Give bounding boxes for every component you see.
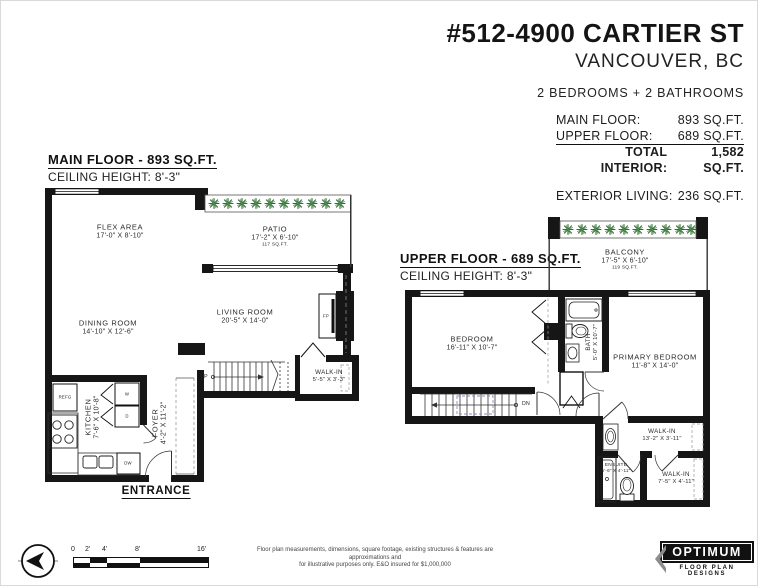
bifold-door-icon bbox=[101, 384, 113, 426]
compass-icon bbox=[18, 541, 58, 581]
listing-header: #512-4900 CARTIER ST VANCOUVER, BC 2 BED… bbox=[446, 18, 744, 205]
vanity-sink-icon bbox=[603, 424, 618, 450]
scale-bar: 0 2' 4' 8' 16' bbox=[73, 546, 215, 570]
stove-icon bbox=[49, 415, 77, 448]
scale-tick: 2' bbox=[85, 546, 90, 553]
stairs-up-icon bbox=[208, 360, 288, 392]
scale-bar-graphic bbox=[73, 557, 209, 568]
disclaimer-line-2: for illustrative purposes only. E&O insu… bbox=[240, 562, 510, 570]
toilet-icon bbox=[620, 478, 634, 502]
room-label-dining: DINING ROOM 14'-10" X 12'-6" bbox=[79, 319, 137, 336]
floor-plan-page: #512-4900 CARTIER ST VANCOUVER, BC 2 BED… bbox=[0, 0, 758, 586]
washer-label: W bbox=[125, 392, 129, 397]
area-value: 893 SQ.FT. bbox=[678, 113, 744, 129]
main-floor-plan: FLEX AREA 17'-0" X 8'-10" PATIO 17'-2" X… bbox=[45, 185, 365, 500]
area-row-main: MAIN FLOOR: 893 SQ.FT. bbox=[556, 113, 744, 129]
room-label-walkin-2: WALK-IN 7'-5" X 4'-11" bbox=[658, 471, 694, 485]
main-floor-ceiling: CEILING HEIGHT: 8'-3" bbox=[48, 170, 180, 184]
logo-box: OPTIMUM bbox=[660, 541, 754, 563]
area-label: MAIN FLOOR: bbox=[556, 113, 641, 129]
dryer-label: D bbox=[125, 414, 128, 419]
sliding-door-icon bbox=[213, 266, 338, 272]
main-floor-drawing bbox=[45, 185, 365, 500]
sliding-door-icon bbox=[628, 291, 696, 296]
dishwasher-label: DW bbox=[124, 461, 132, 466]
scale-tick: 0 bbox=[71, 546, 75, 553]
logo-arrow-icon bbox=[655, 545, 667, 573]
landing-closet bbox=[560, 372, 583, 408]
stairs-down-label: DN bbox=[522, 401, 530, 407]
area-value: 689 SQ.FT. bbox=[678, 129, 744, 145]
disclaimer: Floor plan measurements, dimensions, squ… bbox=[240, 547, 510, 570]
stairs-up-label: UP bbox=[200, 374, 208, 380]
bathtub-icon bbox=[566, 299, 602, 321]
area-row-upper: UPPER FLOOR: 689 SQ.FT. bbox=[556, 129, 744, 145]
area-value: 1,582 SQ.FT. bbox=[667, 145, 744, 176]
room-label-patio: PATIO 17'-2" X 6'-10" 117 SQ.FT. bbox=[251, 225, 298, 248]
washer-dryer-icon bbox=[115, 383, 139, 427]
room-label-bath: BATH 5'-0" X 10'-7" bbox=[585, 324, 599, 360]
listing-address: #512-4900 CARTIER ST bbox=[446, 18, 744, 49]
bifold-door-icon bbox=[532, 300, 546, 354]
room-label-bedroom: BEDROOM 16'-11" X 10'-7" bbox=[447, 335, 498, 352]
room-label-ensuite: ENSUITE 5'-6" X 4'-11" bbox=[602, 463, 631, 473]
area-row-exterior: EXTERIOR LIVING: 236 SQ.FT. bbox=[556, 189, 744, 205]
fireplace-label: FP bbox=[323, 314, 329, 319]
main-floor-title: MAIN FLOOR - 893 SQ.FT. bbox=[48, 152, 217, 169]
balcony-planter bbox=[560, 221, 696, 238]
room-label-kitchen: KITCHEN 7'-6" X 10'-8" bbox=[84, 395, 101, 438]
area-summary: MAIN FLOOR: 893 SQ.FT. UPPER FLOOR: 689 … bbox=[556, 113, 744, 205]
area-value: 236 SQ.FT. bbox=[678, 189, 744, 205]
bath-sink-icon bbox=[566, 344, 579, 362]
window-icon bbox=[55, 189, 99, 194]
entrance-label: ENTRANCE bbox=[122, 485, 191, 499]
scale-tick: 4' bbox=[102, 546, 107, 553]
room-label-walkin-1: WALK-IN 13'-2" X 3'-11" bbox=[642, 428, 681, 442]
room-label-flex-area: FLEX AREA 17'-0" X 8'-10" bbox=[96, 223, 143, 240]
patio-planter bbox=[205, 195, 351, 212]
room-label-living: LIVING ROOM 20'-5" X 14'-0" bbox=[217, 308, 274, 325]
logo-name: OPTIMUM bbox=[663, 544, 751, 560]
north-compass bbox=[18, 541, 58, 586]
area-row-total: TOTAL INTERIOR: 1,582 SQ.FT. bbox=[556, 144, 744, 176]
room-label-foyer: FOYER 4'-2" X 11'-2" bbox=[151, 402, 168, 445]
room-label-walkin-main: WALK-IN 5'-5" X 3'-3" bbox=[313, 369, 346, 383]
entrance-door-icon bbox=[146, 451, 172, 477]
area-label: EXTERIOR LIVING: bbox=[556, 189, 673, 205]
sink-icon bbox=[83, 456, 113, 468]
upper-floor-plan: BALCONY 17'-5" X 6'-10" 119 SQ.FT. BEDRO… bbox=[400, 212, 715, 512]
room-label-balcony: BALCONY 17'-5" X 6'-10" 119 SQ.FT. bbox=[601, 248, 648, 271]
listing-city: VANCOUVER, BC bbox=[446, 51, 744, 73]
room-label-primary-bedroom: PRIMARY BEDROOM 11'-8" X 14'-0" bbox=[613, 353, 697, 370]
window-icon bbox=[420, 291, 464, 296]
beds-baths: 2 BEDROOMS + 2 BATHROOMS bbox=[446, 86, 744, 100]
fridge-label: REFG bbox=[59, 395, 72, 400]
scale-tick: 8' bbox=[135, 546, 140, 553]
area-label: TOTAL INTERIOR: bbox=[556, 145, 667, 176]
closet-door-icon bbox=[301, 343, 325, 357]
scale-tick: 16' bbox=[197, 546, 206, 553]
optimum-logo: OPTIMUM FLOOR PLAN DESIGNS bbox=[660, 541, 754, 577]
logo-tagline: FLOOR PLAN DESIGNS bbox=[660, 565, 754, 577]
disclaimer-line-1: Floor plan measurements, dimensions, squ… bbox=[240, 547, 510, 562]
area-label: UPPER FLOOR: bbox=[556, 129, 653, 145]
